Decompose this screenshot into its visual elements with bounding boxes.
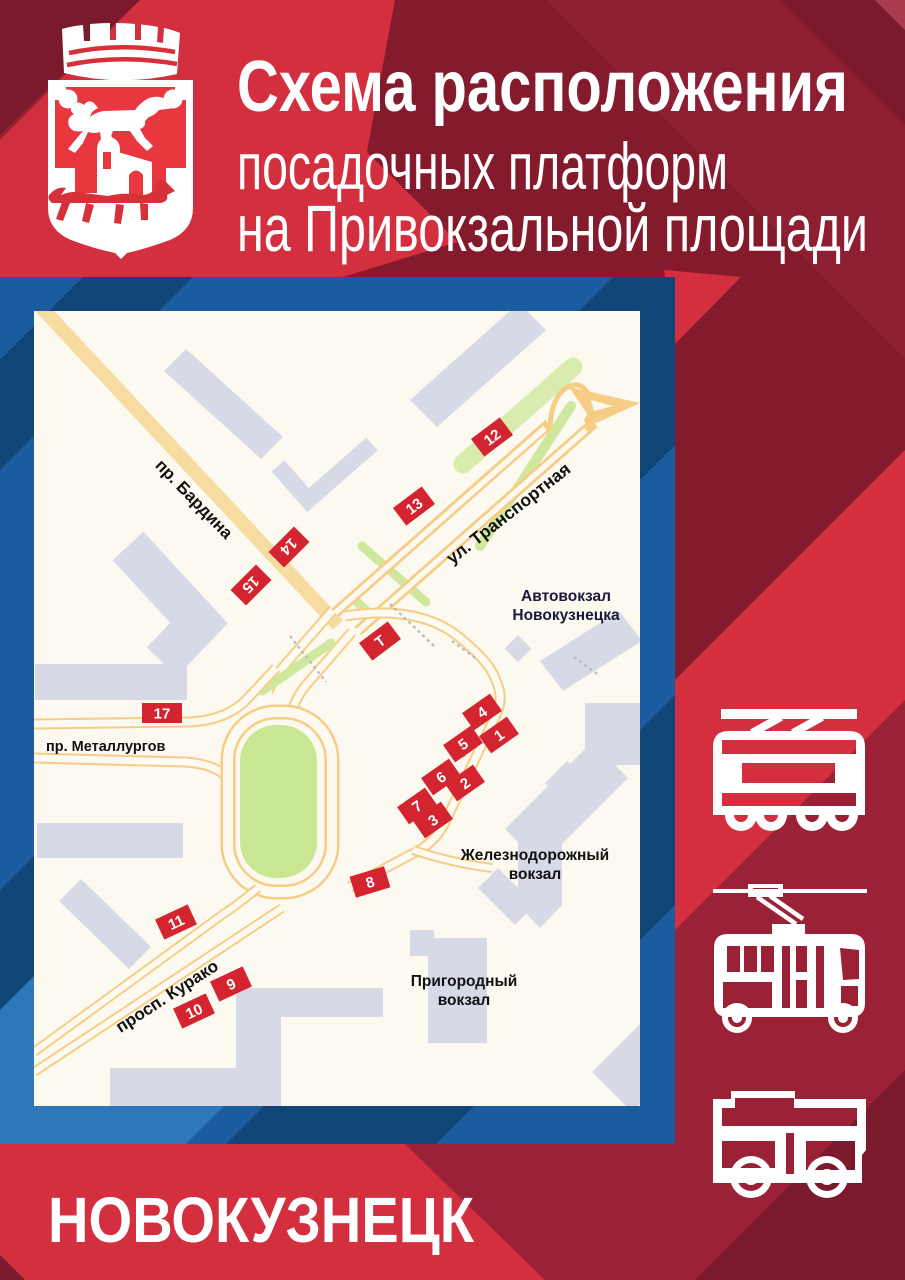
svg-text:пр. Металлургов: пр. Металлургов bbox=[46, 739, 165, 755]
svg-text:вокзал: вокзал bbox=[509, 866, 562, 883]
svg-text:Новокузнецка: Новокузнецка bbox=[512, 607, 620, 624]
svg-text:НОВОКУЗНЕЦК: НОВОКУЗНЕЦК bbox=[48, 1184, 475, 1256]
svg-text:Схема расположения: Схема расположения bbox=[237, 47, 848, 127]
svg-text:Железнодорожный: Железнодорожный bbox=[460, 847, 609, 864]
svg-text:на Привокзальной площади: на Привокзальной площади bbox=[237, 191, 868, 265]
svg-text:17: 17 bbox=[154, 705, 171, 722]
svg-text:Пригородный: Пригородный bbox=[411, 973, 518, 990]
svg-text:вокзал: вокзал bbox=[438, 992, 491, 1009]
svg-text:Автовокзал: Автовокзал bbox=[521, 588, 611, 605]
